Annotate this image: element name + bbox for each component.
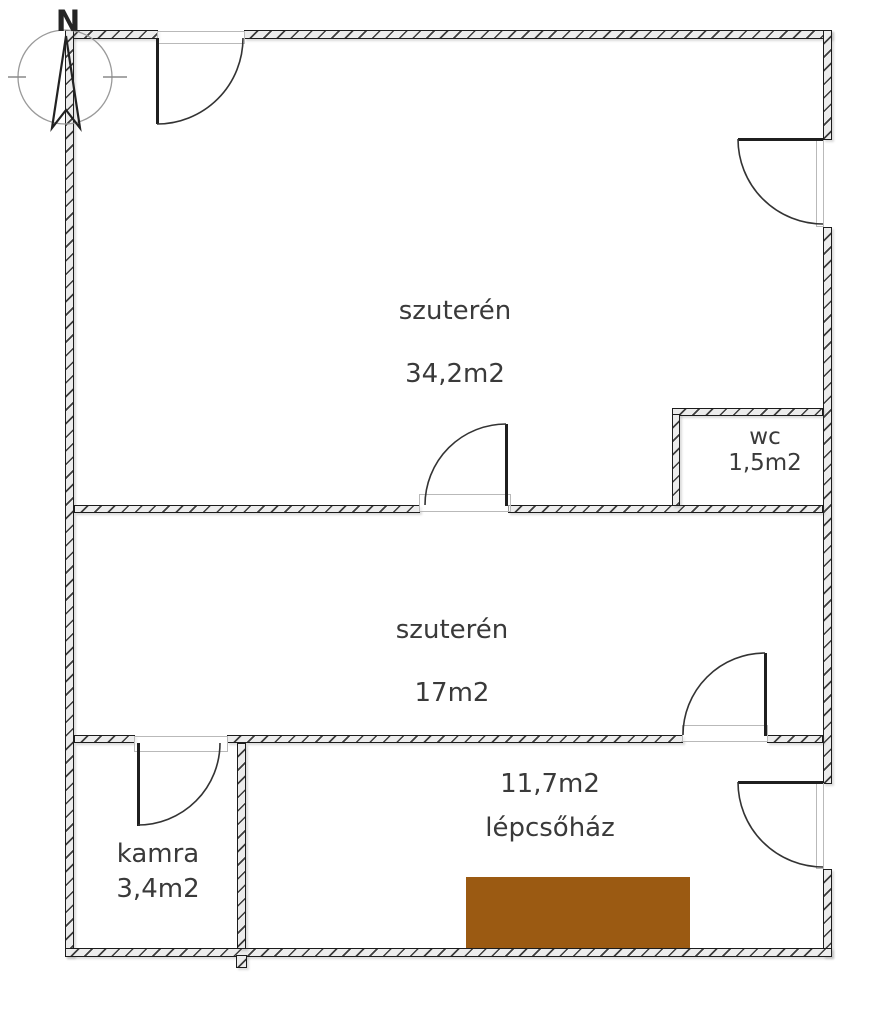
floor-plan: N szuterén 34,2m2 wc 1,5m2 szuterén 17m2… <box>0 0 886 1024</box>
wall-right-lower <box>823 869 832 957</box>
room-area: 11,7m2 <box>500 769 600 799</box>
door-frame-mid2 <box>682 725 768 742</box>
room-area: 17m2 <box>327 677 577 710</box>
room-label-lepcsohaz: 11,7m2 lépcsőház <box>425 762 675 850</box>
door-arc-kamra <box>138 743 220 825</box>
room-area: 34,2m2 <box>330 358 580 391</box>
room-label-wc: wc 1,5m2 <box>690 424 840 477</box>
wall-mid1-left <box>74 505 420 513</box>
compass-north-label: N <box>50 4 86 38</box>
door-leaf-mid2 <box>764 653 767 736</box>
wall-bottom-stub <box>236 955 247 968</box>
wall-mid2-center <box>227 735 683 743</box>
room-name: szuterén <box>399 296 511 326</box>
wall-bottom <box>65 948 832 957</box>
wall-wc-top <box>672 408 823 416</box>
wall-wc-left <box>672 414 680 506</box>
wall-mid2-left <box>74 735 135 743</box>
room-name: wc <box>749 424 780 450</box>
door-arc-right-upper <box>738 139 823 224</box>
room-label-szuteren-large: szuterén 34,2m2 <box>330 295 580 390</box>
room-area: 3,4m2 <box>78 872 238 907</box>
room-name: kamra <box>117 839 199 869</box>
door-frame-kamra <box>134 736 228 752</box>
room-area: 1,5m2 <box>690 450 840 476</box>
wall-mid1-right <box>508 505 823 513</box>
door-arc-mid1 <box>425 424 506 505</box>
door-arc-top <box>157 38 243 124</box>
door-leaf-right-lower <box>738 781 823 784</box>
door-leaf-right-upper <box>738 138 823 141</box>
wall-top-right-segment <box>244 30 832 39</box>
room-name: szuterén <box>396 615 508 645</box>
wall-kamra-right <box>237 743 246 949</box>
door-leaf-top <box>156 38 159 124</box>
door-arc-mid2 <box>683 653 765 735</box>
wall-left <box>65 30 74 957</box>
door-frame-right-upper <box>816 140 824 227</box>
room-label-szuteren-small: szuterén 17m2 <box>327 614 577 709</box>
door-arc-right-lower <box>738 782 823 867</box>
room-label-kamra: kamra 3,4m2 <box>78 837 238 907</box>
door-frame-right-lower <box>816 783 824 869</box>
door-leaf-mid1 <box>505 424 508 506</box>
door-frame-mid1 <box>419 494 511 512</box>
wall-right-middle <box>823 227 832 784</box>
room-name: lépcsőház <box>425 806 675 850</box>
wall-right-upper <box>823 30 832 140</box>
door-leaf-kamra <box>137 743 140 826</box>
wall-mid2-right <box>767 735 823 743</box>
stairs-block <box>466 877 690 948</box>
door-frame-top <box>157 31 245 44</box>
